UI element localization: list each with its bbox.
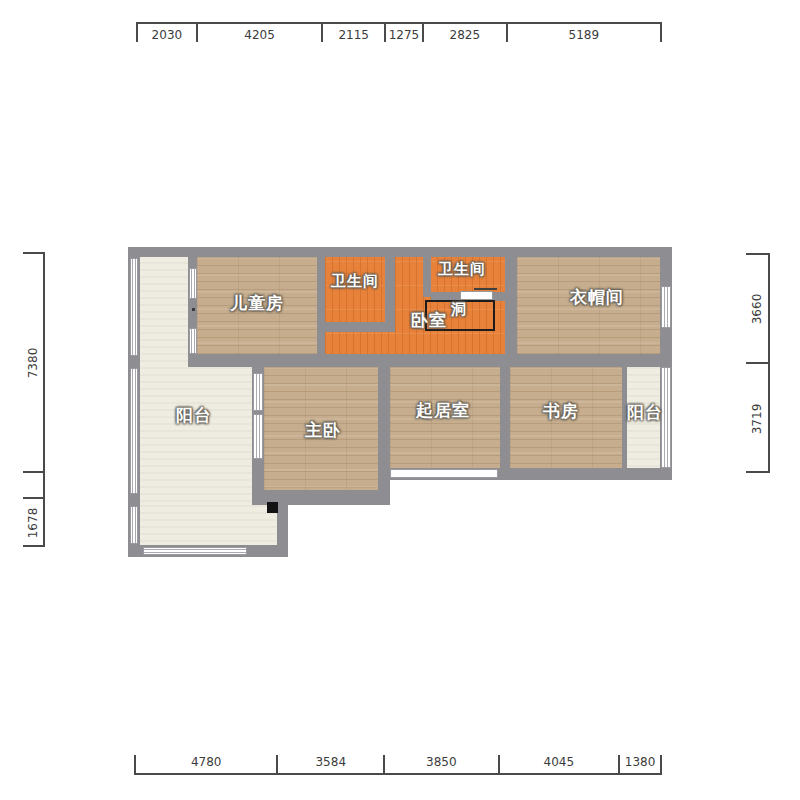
wall-living-study-divider bbox=[500, 367, 510, 468]
balcony-right-label: 阳台 bbox=[627, 401, 663, 424]
window-living-room-bottom bbox=[390, 469, 498, 478]
window-balcony-left-2 bbox=[130, 368, 138, 494]
wall-master-right bbox=[378, 367, 390, 505]
dim-segment: 7380 bbox=[23, 252, 43, 471]
dim-value: 1275 bbox=[389, 28, 420, 42]
window-cloakroom bbox=[661, 286, 671, 328]
dim-value: 3584 bbox=[315, 755, 346, 769]
dim-segment: 2030 bbox=[136, 24, 196, 42]
master-bedroom-label: 主卧 bbox=[305, 419, 341, 442]
dim-segment: 2115 bbox=[321, 24, 384, 42]
wall-bath1-bottom bbox=[317, 322, 395, 332]
dim-value: 2030 bbox=[152, 28, 183, 42]
dim-value: 2115 bbox=[338, 28, 369, 42]
window-balcony-bottom bbox=[143, 547, 247, 555]
dim-value: 1678 bbox=[26, 508, 40, 539]
dim-value: 4205 bbox=[244, 28, 275, 42]
window-master-2 bbox=[253, 414, 263, 459]
floor-plan-canvas: 儿童房 卫生间 卫生间 卧室 洞 衣帽间 阳台 主卧 起居室 书房 阳台 203… bbox=[0, 0, 800, 800]
column-marker bbox=[267, 502, 278, 513]
dim-value: 3719 bbox=[750, 403, 764, 434]
wall-band-upper bbox=[188, 354, 672, 367]
dim-segment: 1380 bbox=[618, 755, 660, 773]
wall-top bbox=[128, 247, 672, 257]
dim-value: 4780 bbox=[191, 755, 222, 769]
cloakroom-label: 衣帽间 bbox=[570, 286, 624, 309]
window-children-room-1 bbox=[189, 268, 197, 299]
dim-segment: 1678 bbox=[23, 497, 43, 547]
dim-value: 1380 bbox=[625, 755, 656, 769]
window-master-1 bbox=[253, 373, 263, 411]
dim-segment: 4045 bbox=[498, 755, 619, 773]
window-balcony-left-1 bbox=[130, 258, 138, 356]
dim-segment: 5189 bbox=[506, 24, 660, 42]
dim-segment: 4780 bbox=[134, 755, 276, 773]
window-balcony-left-3 bbox=[130, 506, 138, 544]
living-room-label: 起居室 bbox=[416, 399, 470, 422]
window-children-room-2 bbox=[189, 328, 197, 354]
dim-segment bbox=[23, 471, 43, 497]
bedroom-label: 卧室 bbox=[411, 309, 447, 332]
balcony-left-floor-foot bbox=[138, 505, 277, 545]
wall-bath1-right bbox=[385, 257, 395, 332]
dim-segment: 3719 bbox=[746, 362, 768, 473]
hole-label: 洞 bbox=[451, 300, 467, 319]
dimension-line-bottom: 4780 3584 3850 4045 1380 bbox=[134, 755, 662, 775]
bathroom-right-label: 卫生间 bbox=[438, 260, 486, 279]
bathroom-left-label: 卫生间 bbox=[331, 272, 379, 291]
study-label: 书房 bbox=[543, 400, 579, 423]
dim-value: 3850 bbox=[426, 755, 457, 769]
dim-value: 4045 bbox=[544, 755, 575, 769]
dim-value: 2825 bbox=[449, 28, 480, 42]
dim-segment: 1275 bbox=[384, 24, 422, 42]
dim-segment: 3584 bbox=[276, 755, 383, 773]
balcony-left-label: 阳台 bbox=[176, 404, 212, 427]
dim-segment: 3660 bbox=[746, 253, 768, 362]
wall-bath1-left bbox=[317, 257, 325, 367]
dim-segment: 3850 bbox=[383, 755, 498, 773]
wall-bath2-left bbox=[423, 257, 431, 297]
dim-value: 7380 bbox=[26, 347, 40, 378]
window-joint-dot bbox=[192, 308, 195, 311]
dim-segment: 2825 bbox=[422, 24, 506, 42]
dim-value: 5189 bbox=[569, 28, 600, 42]
dim-segment: 4205 bbox=[196, 24, 322, 42]
dimension-line-left: 7380 1678 bbox=[23, 252, 45, 547]
children-room-label: 儿童房 bbox=[230, 292, 284, 315]
shelf-line bbox=[474, 288, 497, 290]
dimension-line-right: 3660 3719 bbox=[746, 253, 770, 473]
wall-cloakroom-left bbox=[505, 257, 517, 354]
dim-value: 3660 bbox=[750, 293, 764, 324]
dimension-line-top: 2030 4205 2115 1275 2825 5189 bbox=[136, 22, 662, 42]
